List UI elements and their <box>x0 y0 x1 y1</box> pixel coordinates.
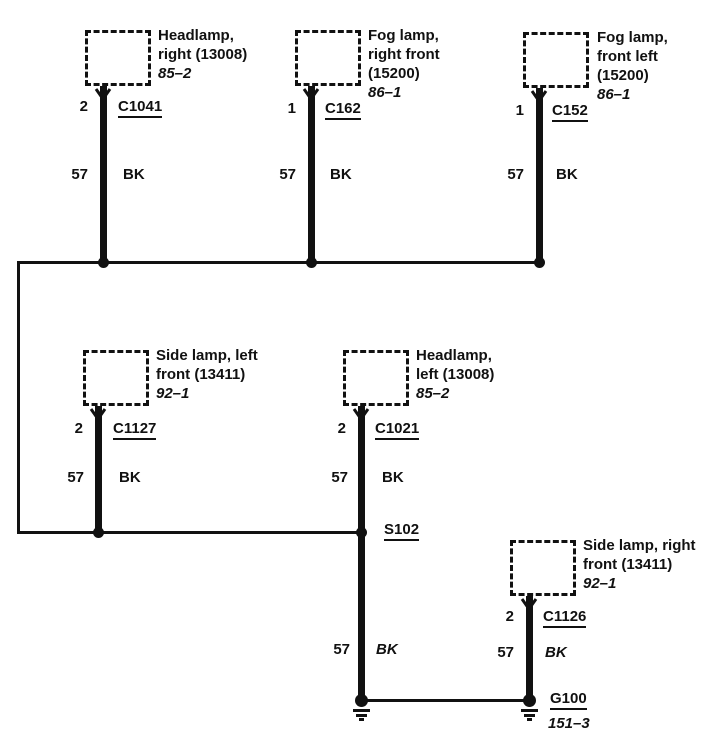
ground-symbol-bar <box>521 709 538 712</box>
wire-color-label: BK <box>330 166 352 183</box>
wire-color-label: BK <box>123 166 145 183</box>
circuit-number: 57 <box>314 469 348 486</box>
splice-label-s102: S102 <box>384 521 419 541</box>
component-name-line: Side lamp, right <box>583 536 696 555</box>
wire-headlamp-right <box>100 86 107 264</box>
connector-label-c162: C162 <box>325 100 361 120</box>
junction-dot <box>93 527 104 538</box>
wire-side-right-front <box>526 596 533 702</box>
pin-number: 1 <box>494 102 524 119</box>
circuit-number: 57 <box>480 644 514 661</box>
component-label-fog-lamp-front-left: Fog lamp, front left (15200) 86–1 <box>597 28 668 104</box>
page-reference: 85–2 <box>416 384 494 403</box>
junction-dot <box>98 257 109 268</box>
circuit-number: 57 <box>50 469 84 486</box>
wire-fog-front-left <box>536 88 543 264</box>
wire-color-label: BK <box>382 469 404 486</box>
component-name-line: front (13411) <box>583 555 696 574</box>
component-box-side-lamp-left-front <box>83 350 149 406</box>
connector-arrow-icon <box>302 87 320 101</box>
pin-number: 2 <box>316 420 346 437</box>
bus-line-top <box>18 261 539 264</box>
component-label-headlamp-right: Headlamp, right (13008) 85–2 <box>158 26 247 83</box>
pin-number: 2 <box>58 98 88 115</box>
component-name-line: Side lamp, left <box>156 346 258 365</box>
junction-dot <box>534 257 545 268</box>
ground-symbol-bar <box>353 709 370 712</box>
connector-label-c1021: C1021 <box>375 420 419 440</box>
component-name-line: Fog lamp, <box>597 28 668 47</box>
page-reference: 92–1 <box>156 384 258 403</box>
ground-page-reference: 151–3 <box>548 715 590 732</box>
connector-label-c152: C152 <box>552 102 588 122</box>
component-box-fog-lamp-front-left <box>523 32 589 88</box>
component-name-line: front (13411) <box>156 365 258 384</box>
wire-fog-right-front <box>308 86 315 264</box>
left-rail-line <box>17 261 20 534</box>
component-label-side-lamp-left-front: Side lamp, left front (13411) 92–1 <box>156 346 258 403</box>
component-box-side-lamp-right-front <box>510 540 576 596</box>
wire-color-label: BK <box>556 166 578 183</box>
component-box-headlamp-right <box>85 30 151 86</box>
component-label-fog-lamp-right-front: Fog lamp, right front (15200) 86–1 <box>368 26 440 102</box>
ground-label-g100: G100 <box>550 690 587 710</box>
ground-symbol-bar <box>524 714 535 717</box>
circuit-number: 57 <box>54 166 88 183</box>
wiring-diagram: Headlamp, right (13008) 85–2 2 C1041 57 … <box>0 0 716 752</box>
circuit-number: 57 <box>490 166 524 183</box>
ground-dot <box>523 694 536 707</box>
component-box-headlamp-left <box>343 350 409 406</box>
bus-line-middle <box>18 531 361 534</box>
pin-number: 1 <box>266 100 296 117</box>
component-name-line: (15200) <box>597 66 668 85</box>
component-box-fog-lamp-right-front <box>295 30 361 86</box>
connector-label-c1126: C1126 <box>543 608 586 628</box>
connector-arrow-icon <box>530 89 548 103</box>
component-name-line: (15200) <box>368 64 440 83</box>
ground-symbol-bar <box>527 718 532 721</box>
page-reference: 85–2 <box>158 64 247 83</box>
connector-label-c1041: C1041 <box>118 98 162 118</box>
wire-color-label: BK <box>119 469 141 486</box>
pin-number: 2 <box>53 420 83 437</box>
pin-number: 2 <box>484 608 514 625</box>
connector-arrow-icon <box>89 407 107 421</box>
page-reference: 86–1 <box>597 85 668 104</box>
connector-label-c1127: C1127 <box>113 420 156 440</box>
wire-headlamp-left <box>358 406 365 702</box>
wire-side-left-front <box>95 406 102 534</box>
component-name-line: Fog lamp, <box>368 26 440 45</box>
component-label-side-lamp-right-front: Side lamp, right front (13411) 92–1 <box>583 536 696 593</box>
ground-symbol-bar <box>356 714 367 717</box>
component-name-line: left (13008) <box>416 365 494 384</box>
component-name-line: right (13008) <box>158 45 247 64</box>
junction-dot <box>306 257 317 268</box>
component-name-line: right front <box>368 45 440 64</box>
ground-link-line <box>359 699 531 702</box>
component-name-line: front left <box>597 47 668 66</box>
component-name-line: Headlamp, <box>158 26 247 45</box>
connector-arrow-icon <box>94 87 112 101</box>
component-label-headlamp-left: Headlamp, left (13008) 85–2 <box>416 346 494 403</box>
wire-color-label: BK <box>376 641 398 658</box>
connector-arrow-icon <box>352 407 370 421</box>
ground-symbol-bar <box>359 718 364 721</box>
component-name-line: Headlamp, <box>416 346 494 365</box>
wire-color-label: BK <box>545 644 567 661</box>
connector-arrow-icon <box>520 597 538 611</box>
page-reference: 86–1 <box>368 83 440 102</box>
ground-dot <box>355 694 368 707</box>
circuit-number: 57 <box>316 641 350 658</box>
splice-dot-s102 <box>356 527 367 538</box>
page-reference: 92–1 <box>583 574 696 593</box>
circuit-number: 57 <box>262 166 296 183</box>
